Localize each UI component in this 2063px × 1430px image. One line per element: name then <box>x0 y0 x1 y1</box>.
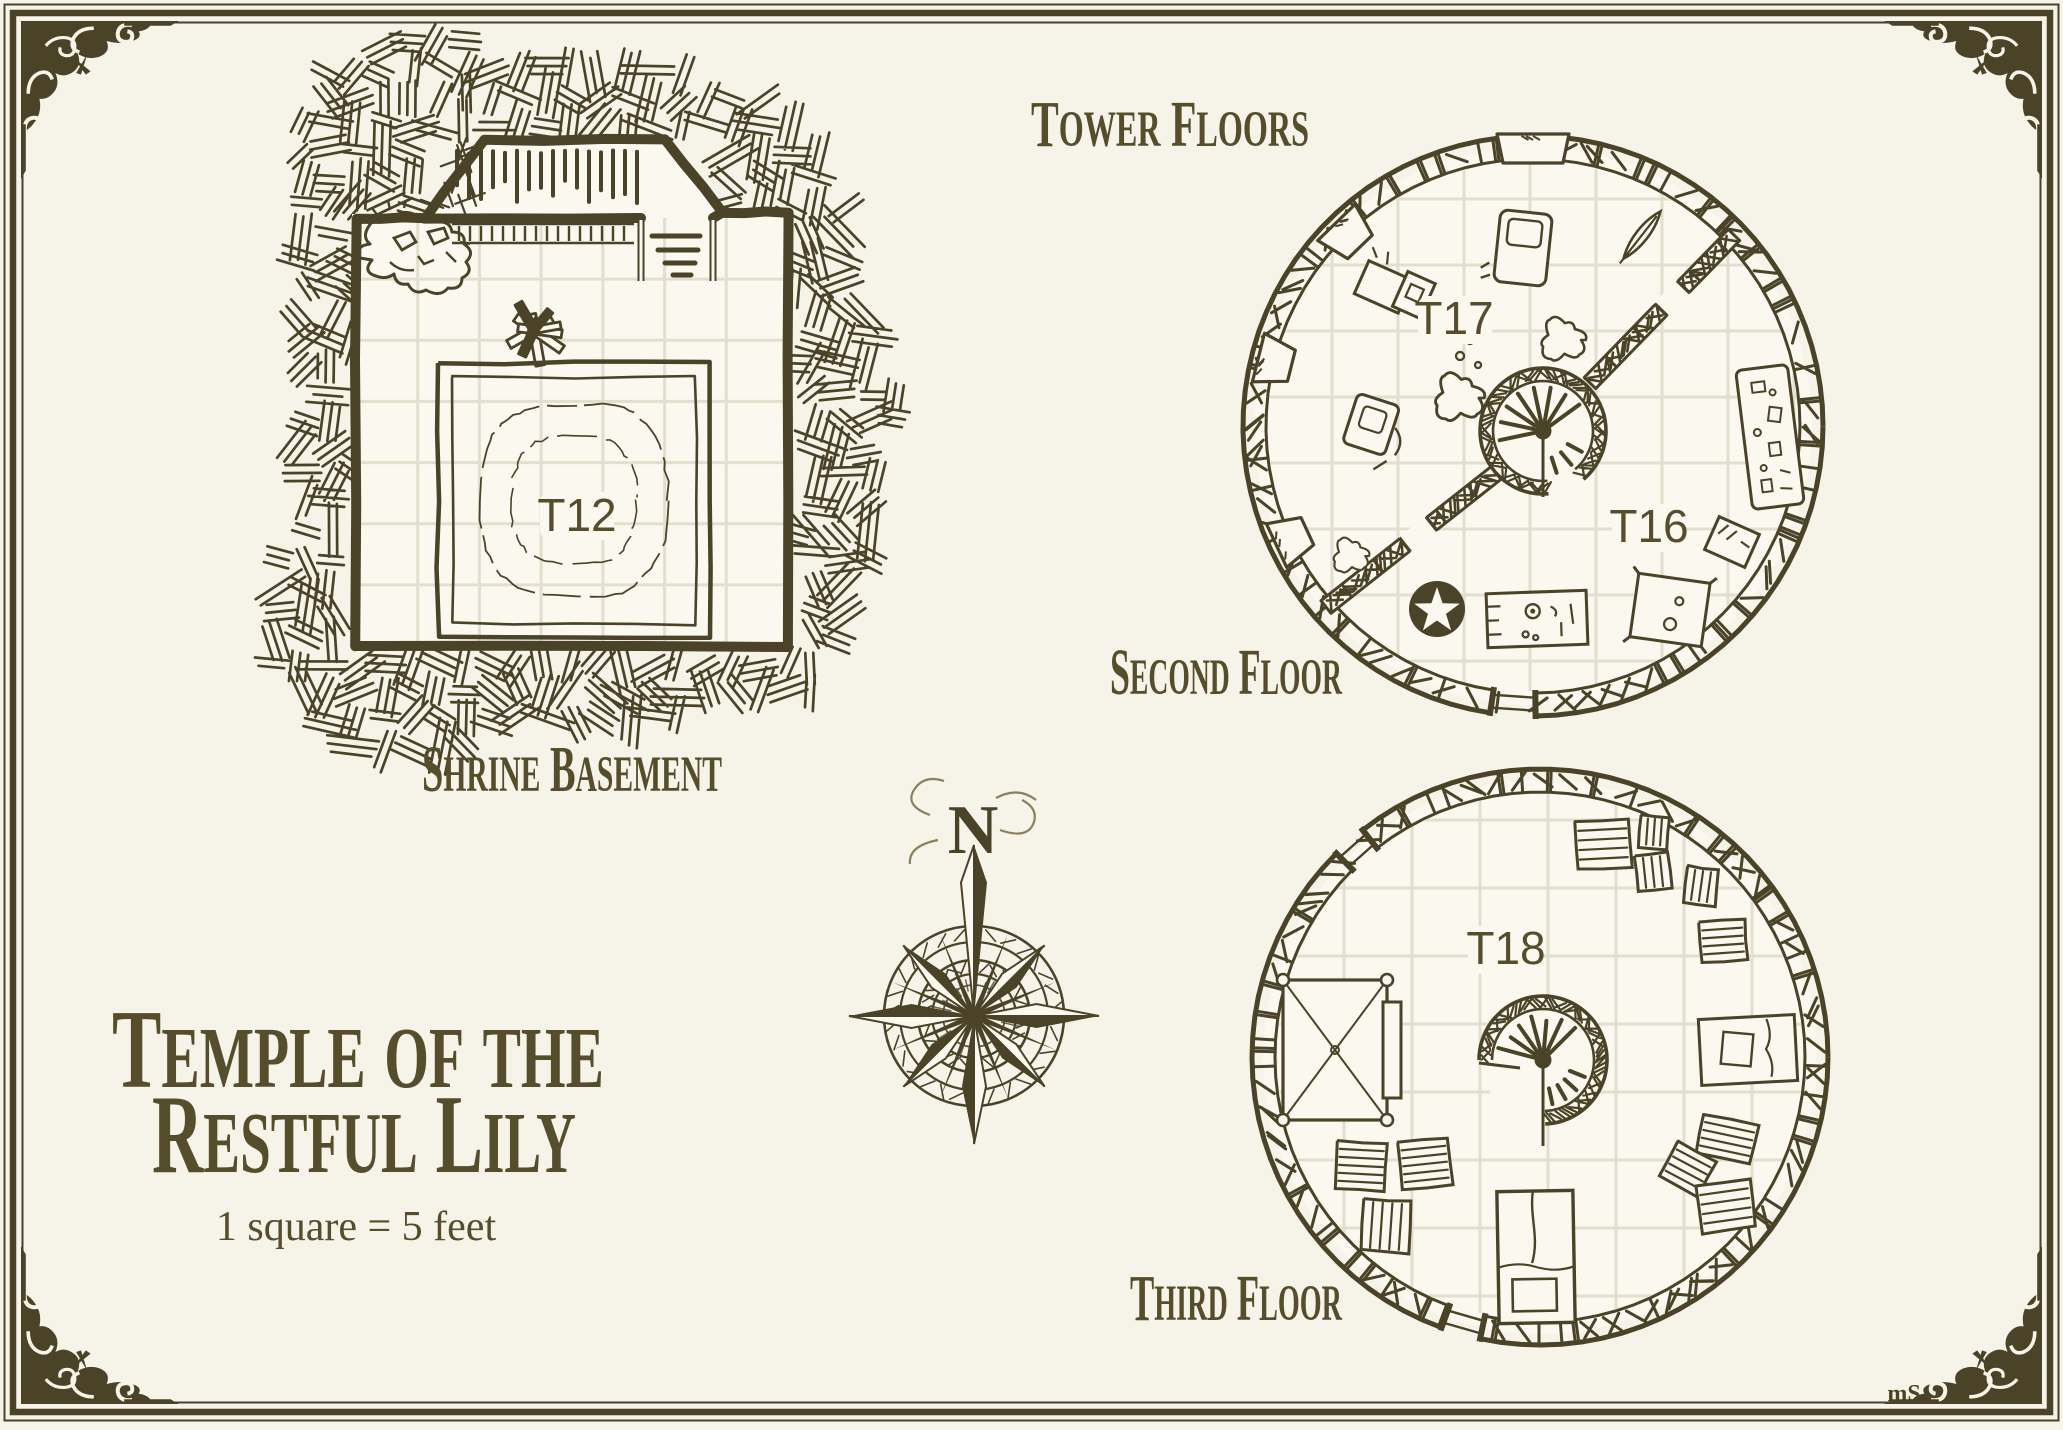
svg-text:T18: T18 <box>1466 922 1545 974</box>
svg-text:N: N <box>948 792 999 869</box>
svg-text:T12: T12 <box>537 489 616 541</box>
svg-text:1 square = 5 feet: 1 square = 5 feet <box>216 1204 497 1250</box>
svg-text:T16: T16 <box>1609 500 1688 552</box>
svg-text:T17: T17 <box>1414 292 1493 344</box>
svg-text:mS: mS <box>1887 1381 1920 1407</box>
